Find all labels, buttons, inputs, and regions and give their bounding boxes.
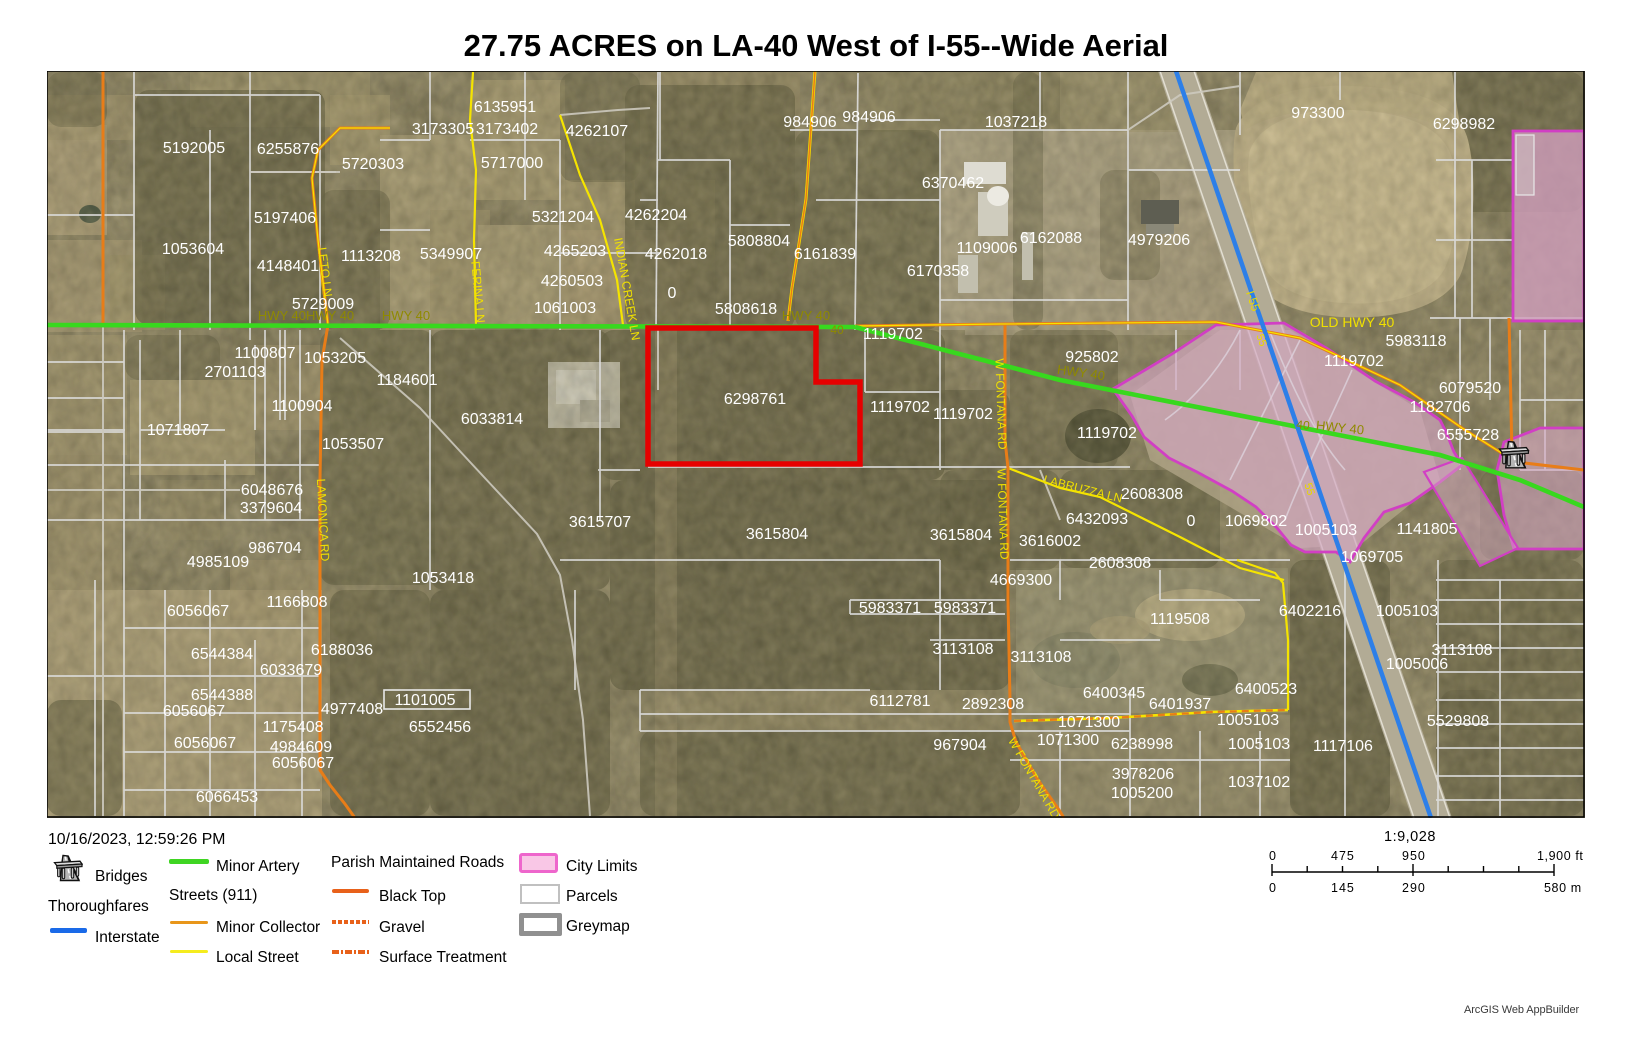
svg-text:6056067: 6056067	[272, 755, 334, 772]
svg-text:3173305: 3173305	[412, 121, 474, 138]
svg-text:2701103: 2701103	[204, 364, 265, 381]
svg-text:6170358: 6170358	[907, 263, 969, 280]
svg-text:1037218: 1037218	[985, 114, 1047, 131]
svg-text:4262204: 4262204	[625, 207, 687, 224]
svg-text:3173402: 3173402	[476, 121, 538, 138]
svg-text:6056067: 6056067	[163, 703, 225, 720]
svg-text:986704: 986704	[248, 540, 301, 557]
svg-text:1119702: 1119702	[933, 406, 993, 423]
svg-text:HWY 40: HWY 40	[782, 308, 830, 323]
svg-text:1069705: 1069705	[1341, 549, 1403, 566]
svg-text:1005103: 1005103	[1295, 522, 1357, 539]
svg-text:6056067: 6056067	[174, 735, 236, 752]
svg-text:1071807: 1071807	[147, 422, 209, 439]
svg-text:5808618: 5808618	[715, 301, 777, 318]
svg-text:3113108: 3113108	[1010, 649, 1071, 666]
svg-text:6544388: 6544388	[191, 687, 253, 704]
svg-text:6033814: 6033814	[461, 411, 523, 428]
svg-text:3615707: 3615707	[569, 514, 631, 531]
svg-text:1100807: 1100807	[234, 345, 295, 362]
svg-text:6552456: 6552456	[409, 719, 471, 736]
svg-text:5983371: 5983371	[859, 600, 921, 617]
svg-text:5808804: 5808804	[728, 233, 790, 250]
svg-text:4262107: 4262107	[566, 123, 628, 140]
svg-text:OLD HWY 40: OLD HWY 40	[1310, 314, 1395, 330]
svg-text:1053507: 1053507	[322, 436, 384, 453]
svg-text:984906: 984906	[783, 114, 836, 131]
svg-text:6162088: 6162088	[1020, 230, 1082, 247]
svg-text:6298761: 6298761	[724, 391, 786, 408]
svg-text:1109006: 1109006	[956, 240, 1017, 257]
svg-text:6066453: 6066453	[196, 789, 258, 806]
svg-text:1184601: 1184601	[376, 372, 437, 389]
svg-text:1119702: 1119702	[863, 326, 923, 343]
svg-text:1119702: 1119702	[870, 399, 930, 416]
svg-text:5729009: 5729009	[292, 296, 354, 313]
svg-text:4148401: 4148401	[257, 258, 319, 275]
svg-text:3978206: 3978206	[1112, 766, 1174, 783]
svg-text:3616002: 3616002	[1019, 533, 1081, 550]
svg-text:1119702: 1119702	[1324, 353, 1384, 370]
svg-text:6135951: 6135951	[474, 99, 536, 116]
svg-text:984906: 984906	[842, 109, 895, 126]
svg-text:6079520: 6079520	[1439, 380, 1501, 397]
svg-text:1069802: 1069802	[1225, 513, 1287, 530]
svg-text:1119702: 1119702	[1077, 425, 1137, 442]
svg-text:6401937: 6401937	[1149, 696, 1211, 713]
svg-text:1166808: 1166808	[266, 594, 327, 611]
svg-text:5717000: 5717000	[481, 155, 543, 172]
svg-text:1037102: 1037102	[1228, 774, 1290, 791]
svg-text:6188036: 6188036	[311, 642, 373, 659]
svg-text:1182706: 1182706	[1409, 399, 1470, 416]
svg-text:6432093: 6432093	[1066, 511, 1128, 528]
svg-text:925802: 925802	[1065, 349, 1118, 366]
svg-text:1071300: 1071300	[1037, 732, 1099, 749]
svg-text:4977408: 4977408	[321, 701, 383, 718]
svg-text:1053418: 1053418	[412, 570, 474, 587]
svg-text:4669300: 4669300	[990, 572, 1052, 589]
svg-text:1117106: 1117106	[1313, 738, 1373, 755]
svg-text:5720303: 5720303	[342, 156, 404, 173]
svg-text:3379604: 3379604	[240, 500, 302, 517]
svg-text:1061003: 1061003	[534, 300, 596, 317]
svg-text:1119508: 1119508	[1150, 611, 1210, 628]
svg-text:1005006: 1005006	[1386, 656, 1448, 673]
svg-text:0: 0	[668, 285, 677, 302]
svg-text:4985109: 4985109	[187, 554, 249, 571]
svg-text:40: 40	[830, 323, 844, 337]
svg-text:1005200: 1005200	[1111, 785, 1173, 802]
svg-text:6400523: 6400523	[1235, 681, 1297, 698]
svg-text:4984609: 4984609	[270, 739, 332, 756]
svg-text:2608308: 2608308	[1121, 486, 1183, 503]
svg-text:1005103: 1005103	[1217, 712, 1279, 729]
svg-text:1141805: 1141805	[1396, 521, 1457, 538]
svg-text:5983371: 5983371	[934, 600, 996, 617]
svg-text:4262018: 4262018	[645, 246, 707, 263]
svg-text:1113208: 1113208	[341, 248, 401, 265]
svg-text:1100904: 1100904	[271, 398, 332, 415]
svg-text:6161839: 6161839	[794, 246, 856, 263]
svg-text:5321204: 5321204	[532, 209, 594, 226]
svg-text:6255876: 6255876	[257, 141, 319, 158]
svg-text:6370462: 6370462	[922, 175, 984, 192]
svg-text:0: 0	[1187, 513, 1196, 530]
svg-text:1053205: 1053205	[304, 350, 366, 367]
svg-text:1005103: 1005103	[1376, 603, 1438, 620]
svg-text:1175408: 1175408	[262, 719, 323, 736]
svg-text:1101005: 1101005	[394, 692, 455, 709]
svg-text:6056067: 6056067	[167, 603, 229, 620]
svg-text:5349907: 5349907	[420, 246, 482, 263]
svg-text:40: 40	[1296, 417, 1311, 432]
svg-text:6033679: 6033679	[260, 662, 322, 679]
svg-text:6402216: 6402216	[1279, 603, 1341, 620]
svg-text:5983118: 5983118	[1385, 333, 1446, 350]
svg-text:6238998: 6238998	[1111, 736, 1173, 753]
svg-text:2608308: 2608308	[1089, 555, 1151, 572]
svg-text:5529808: 5529808	[1427, 713, 1489, 730]
svg-text:4265203: 4265203	[544, 243, 606, 260]
svg-text:5197406: 5197406	[254, 210, 316, 227]
svg-text:3615804: 3615804	[930, 527, 992, 544]
svg-text:2892308: 2892308	[962, 696, 1024, 713]
svg-text:6298982: 6298982	[1433, 116, 1495, 133]
svg-text:4260503: 4260503	[541, 273, 603, 290]
svg-text:HWY 40: HWY 40	[382, 308, 430, 323]
svg-text:6048676: 6048676	[241, 482, 303, 499]
svg-text:1005103: 1005103	[1228, 736, 1290, 753]
svg-text:1071300: 1071300	[1058, 714, 1120, 731]
svg-text:6400345: 6400345	[1083, 685, 1145, 702]
svg-text:973300: 973300	[1291, 105, 1344, 122]
svg-text:967904: 967904	[933, 737, 986, 754]
svg-text:5192005: 5192005	[163, 140, 225, 157]
svg-text:6544384: 6544384	[191, 646, 253, 663]
svg-text:3113108: 3113108	[932, 641, 993, 658]
svg-text:3615804: 3615804	[746, 526, 808, 543]
svg-text:6555728: 6555728	[1437, 427, 1499, 444]
svg-text:4979206: 4979206	[1128, 232, 1190, 249]
svg-text:6112781: 6112781	[869, 693, 930, 710]
svg-text:1053604: 1053604	[162, 241, 224, 258]
